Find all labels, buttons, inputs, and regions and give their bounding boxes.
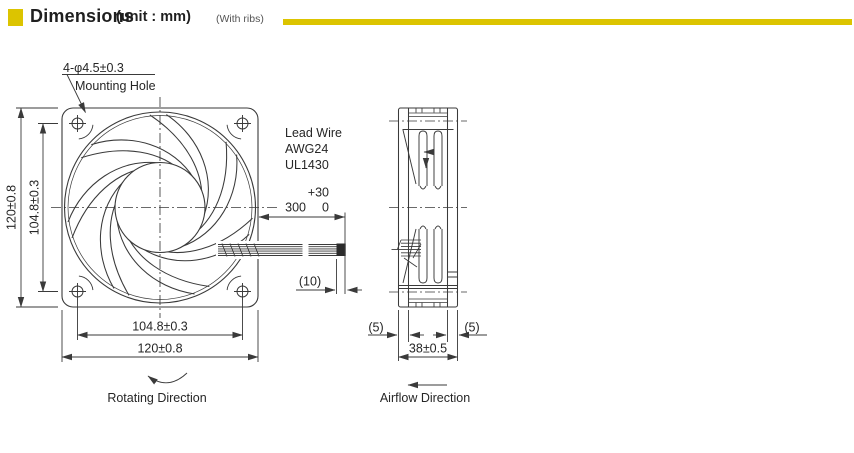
centerlines-side	[389, 121, 467, 292]
side-wire-coil	[392, 240, 422, 267]
mounting-hole-callout-name: Mounting Hole	[75, 79, 156, 93]
lead-wire-label-3: UL1430	[285, 158, 329, 172]
technical-drawing: 4-φ4.5±0.3 Mounting Hole 120±0.8 104.8±0…	[0, 0, 854, 453]
mounting-hole	[234, 115, 251, 132]
side-bottom-flange	[409, 299, 448, 307]
dim-height-outer-label: 120±0.8	[5, 185, 19, 230]
mounting-hole-callout-spec: 4-φ4.5±0.3	[63, 61, 124, 75]
side-top-flange	[409, 109, 448, 117]
dimension-drawing-page: Dimensions (unit : mm) (With ribs)	[0, 0, 854, 453]
dim-height-inner-label: 104.8±0.3	[28, 180, 42, 236]
lead-wire-bundle	[216, 241, 346, 259]
dim-rib-left-label: (5)	[368, 321, 383, 335]
mounting-hole	[69, 115, 86, 132]
airflow-direction-label: Airflow Direction	[380, 391, 470, 405]
wire-stripped-tip	[337, 244, 346, 257]
lead-wire-label-1: Lead Wire	[285, 126, 342, 140]
dim-rib-right-label: (5)	[464, 321, 479, 335]
side-view	[389, 108, 467, 307]
dim-depth-label: 38±0.5	[409, 342, 447, 356]
side-upper-blade-profile	[403, 130, 454, 190]
lead-wire-label-2: AWG24	[285, 142, 328, 156]
rotating-direction-arrow-icon	[148, 373, 187, 383]
dim-lead-wire-tol-upper: +30	[308, 186, 329, 200]
dim-lead-wire-tol-lower: 0	[322, 201, 329, 215]
side-lower-blade-profile	[399, 226, 458, 289]
dim-width-inner-label: 104.8±0.3	[132, 320, 188, 334]
mounting-hole	[234, 283, 251, 300]
dim-width-outer-label: 120±0.8	[137, 342, 182, 356]
molded-direction-arrows	[424, 152, 433, 168]
dim-lead-wire-length: 300	[285, 201, 306, 215]
wire-straight-section	[262, 245, 337, 256]
rotating-direction-label: Rotating Direction	[107, 391, 206, 405]
mounting-hole	[69, 283, 86, 300]
front-view	[51, 97, 280, 318]
dim-strip-length-label: (10)	[299, 275, 321, 289]
